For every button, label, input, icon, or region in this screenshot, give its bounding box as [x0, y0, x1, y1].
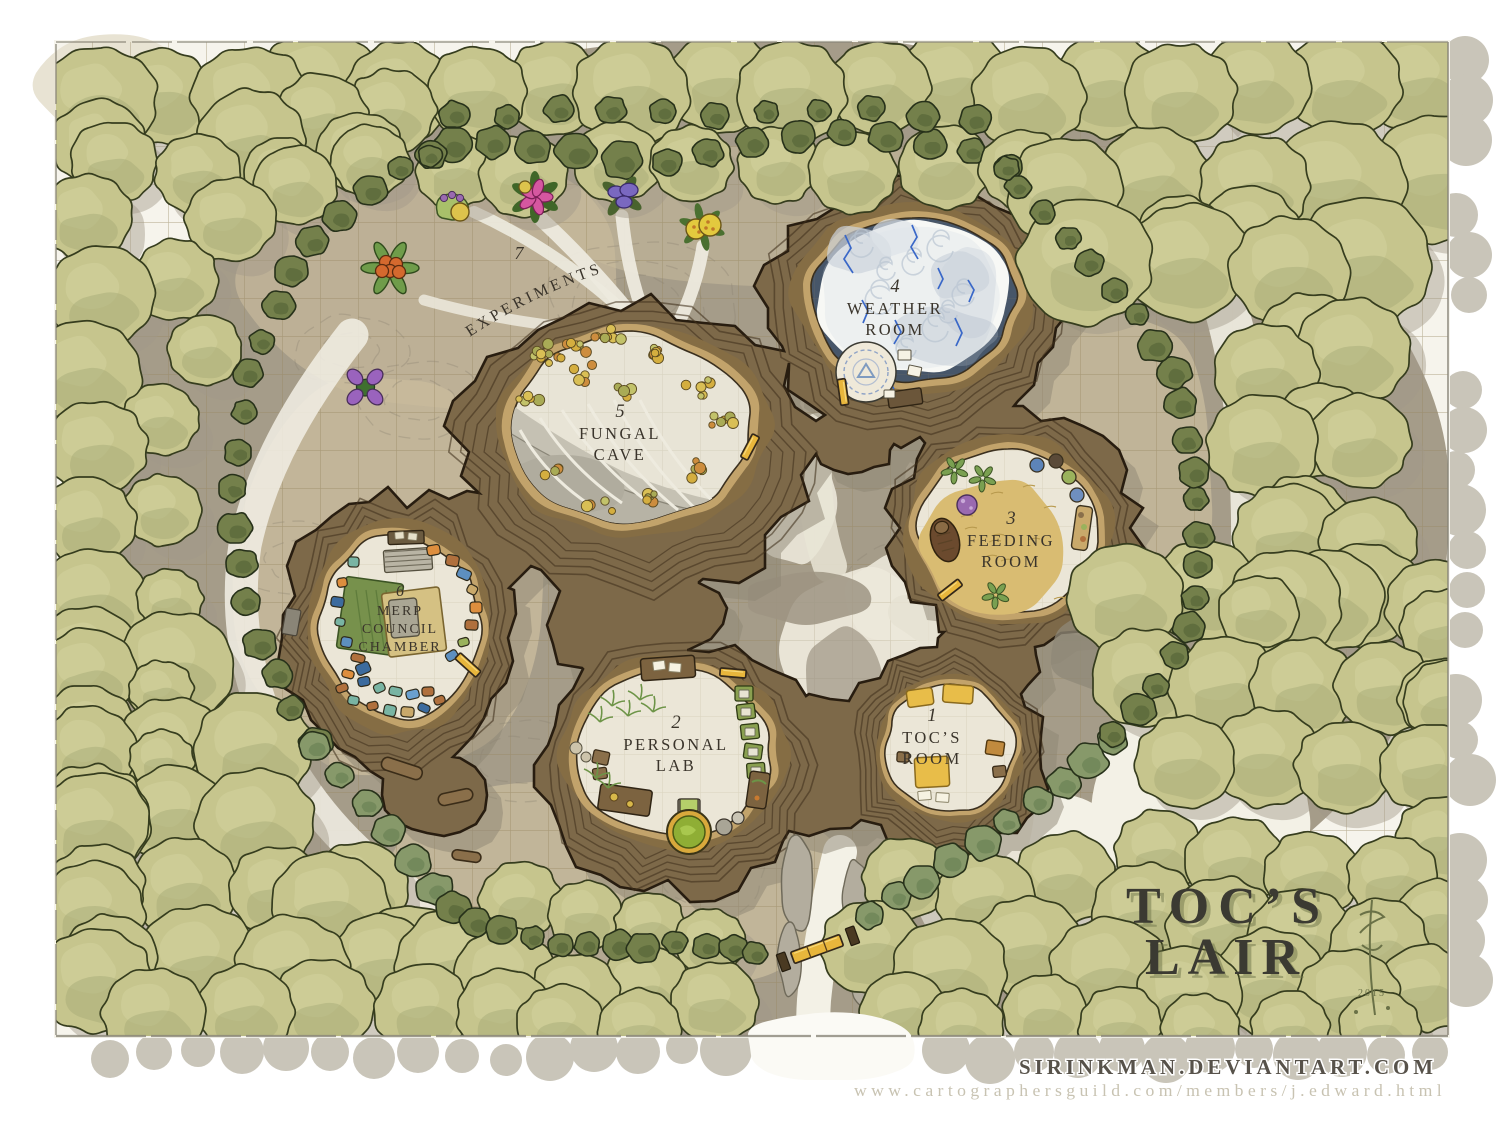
svg-text:www.cartographersguild.com/mem: www.cartographersguild.com/members/j.edw… — [854, 1081, 1446, 1100]
svg-text:LAIR: LAIR — [1145, 929, 1313, 986]
svg-text:CAVE: CAVE — [594, 445, 647, 464]
svg-text:2: 2 — [671, 713, 680, 733]
svg-text:WEATHER: WEATHER — [847, 299, 943, 318]
svg-text:FUNGAL: FUNGAL — [579, 424, 661, 443]
svg-text:TOC’S: TOC’S — [1126, 878, 1332, 935]
svg-text:PERSONAL: PERSONAL — [623, 735, 728, 754]
svg-text:3: 3 — [1005, 509, 1015, 529]
svg-text:6: 6 — [396, 583, 404, 600]
svg-text:ROOM: ROOM — [902, 749, 962, 768]
svg-text:SIRINKMAN.DEVIANTART.COM: SIRINKMAN.DEVIANTART.COM — [1019, 1055, 1437, 1079]
svg-text:1: 1 — [927, 706, 936, 726]
svg-text:FEEDING: FEEDING — [967, 531, 1055, 550]
svg-text:ROOM: ROOM — [865, 320, 925, 339]
svg-text:LAB: LAB — [656, 756, 697, 775]
svg-text:2015: 2015 — [1358, 988, 1386, 999]
svg-text:4: 4 — [890, 277, 899, 297]
svg-text:MERP: MERP — [377, 604, 423, 619]
svg-text:COUNCIL: COUNCIL — [362, 622, 438, 637]
svg-text:CHAMBER: CHAMBER — [358, 640, 441, 655]
svg-text:TOC’S: TOC’S — [902, 728, 962, 747]
svg-text:ROOM: ROOM — [981, 552, 1041, 571]
svg-text:5: 5 — [615, 402, 624, 422]
svg-text:7: 7 — [515, 243, 525, 263]
